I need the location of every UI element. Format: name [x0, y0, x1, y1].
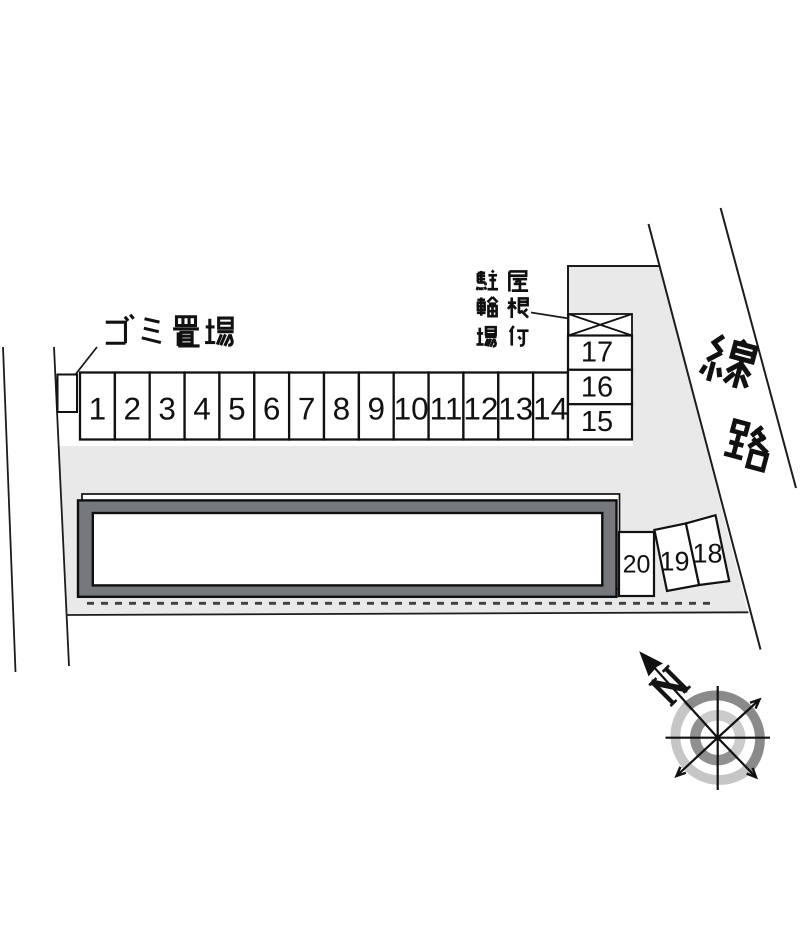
svg-text:13: 13: [498, 391, 533, 427]
svg-text:20: 20: [623, 550, 651, 578]
svg-text:11: 11: [430, 391, 463, 427]
svg-text:12: 12: [463, 391, 498, 427]
svg-text:17: 17: [581, 337, 613, 369]
svg-text:7: 7: [298, 391, 316, 427]
svg-text:19: 19: [659, 547, 689, 577]
svg-text:18: 18: [692, 538, 722, 568]
svg-text:4: 4: [193, 391, 211, 427]
svg-text:8: 8: [333, 391, 351, 427]
svg-text:6: 6: [263, 391, 281, 427]
svg-text:10: 10: [394, 391, 429, 427]
svg-text:5: 5: [228, 391, 246, 427]
svg-text:14: 14: [533, 391, 568, 427]
svg-text:9: 9: [368, 391, 386, 427]
svg-text:1: 1: [89, 391, 107, 427]
svg-text:15: 15: [581, 406, 613, 438]
svg-text:16: 16: [581, 372, 613, 404]
svg-text:2: 2: [124, 391, 142, 427]
svg-text:3: 3: [158, 391, 176, 427]
